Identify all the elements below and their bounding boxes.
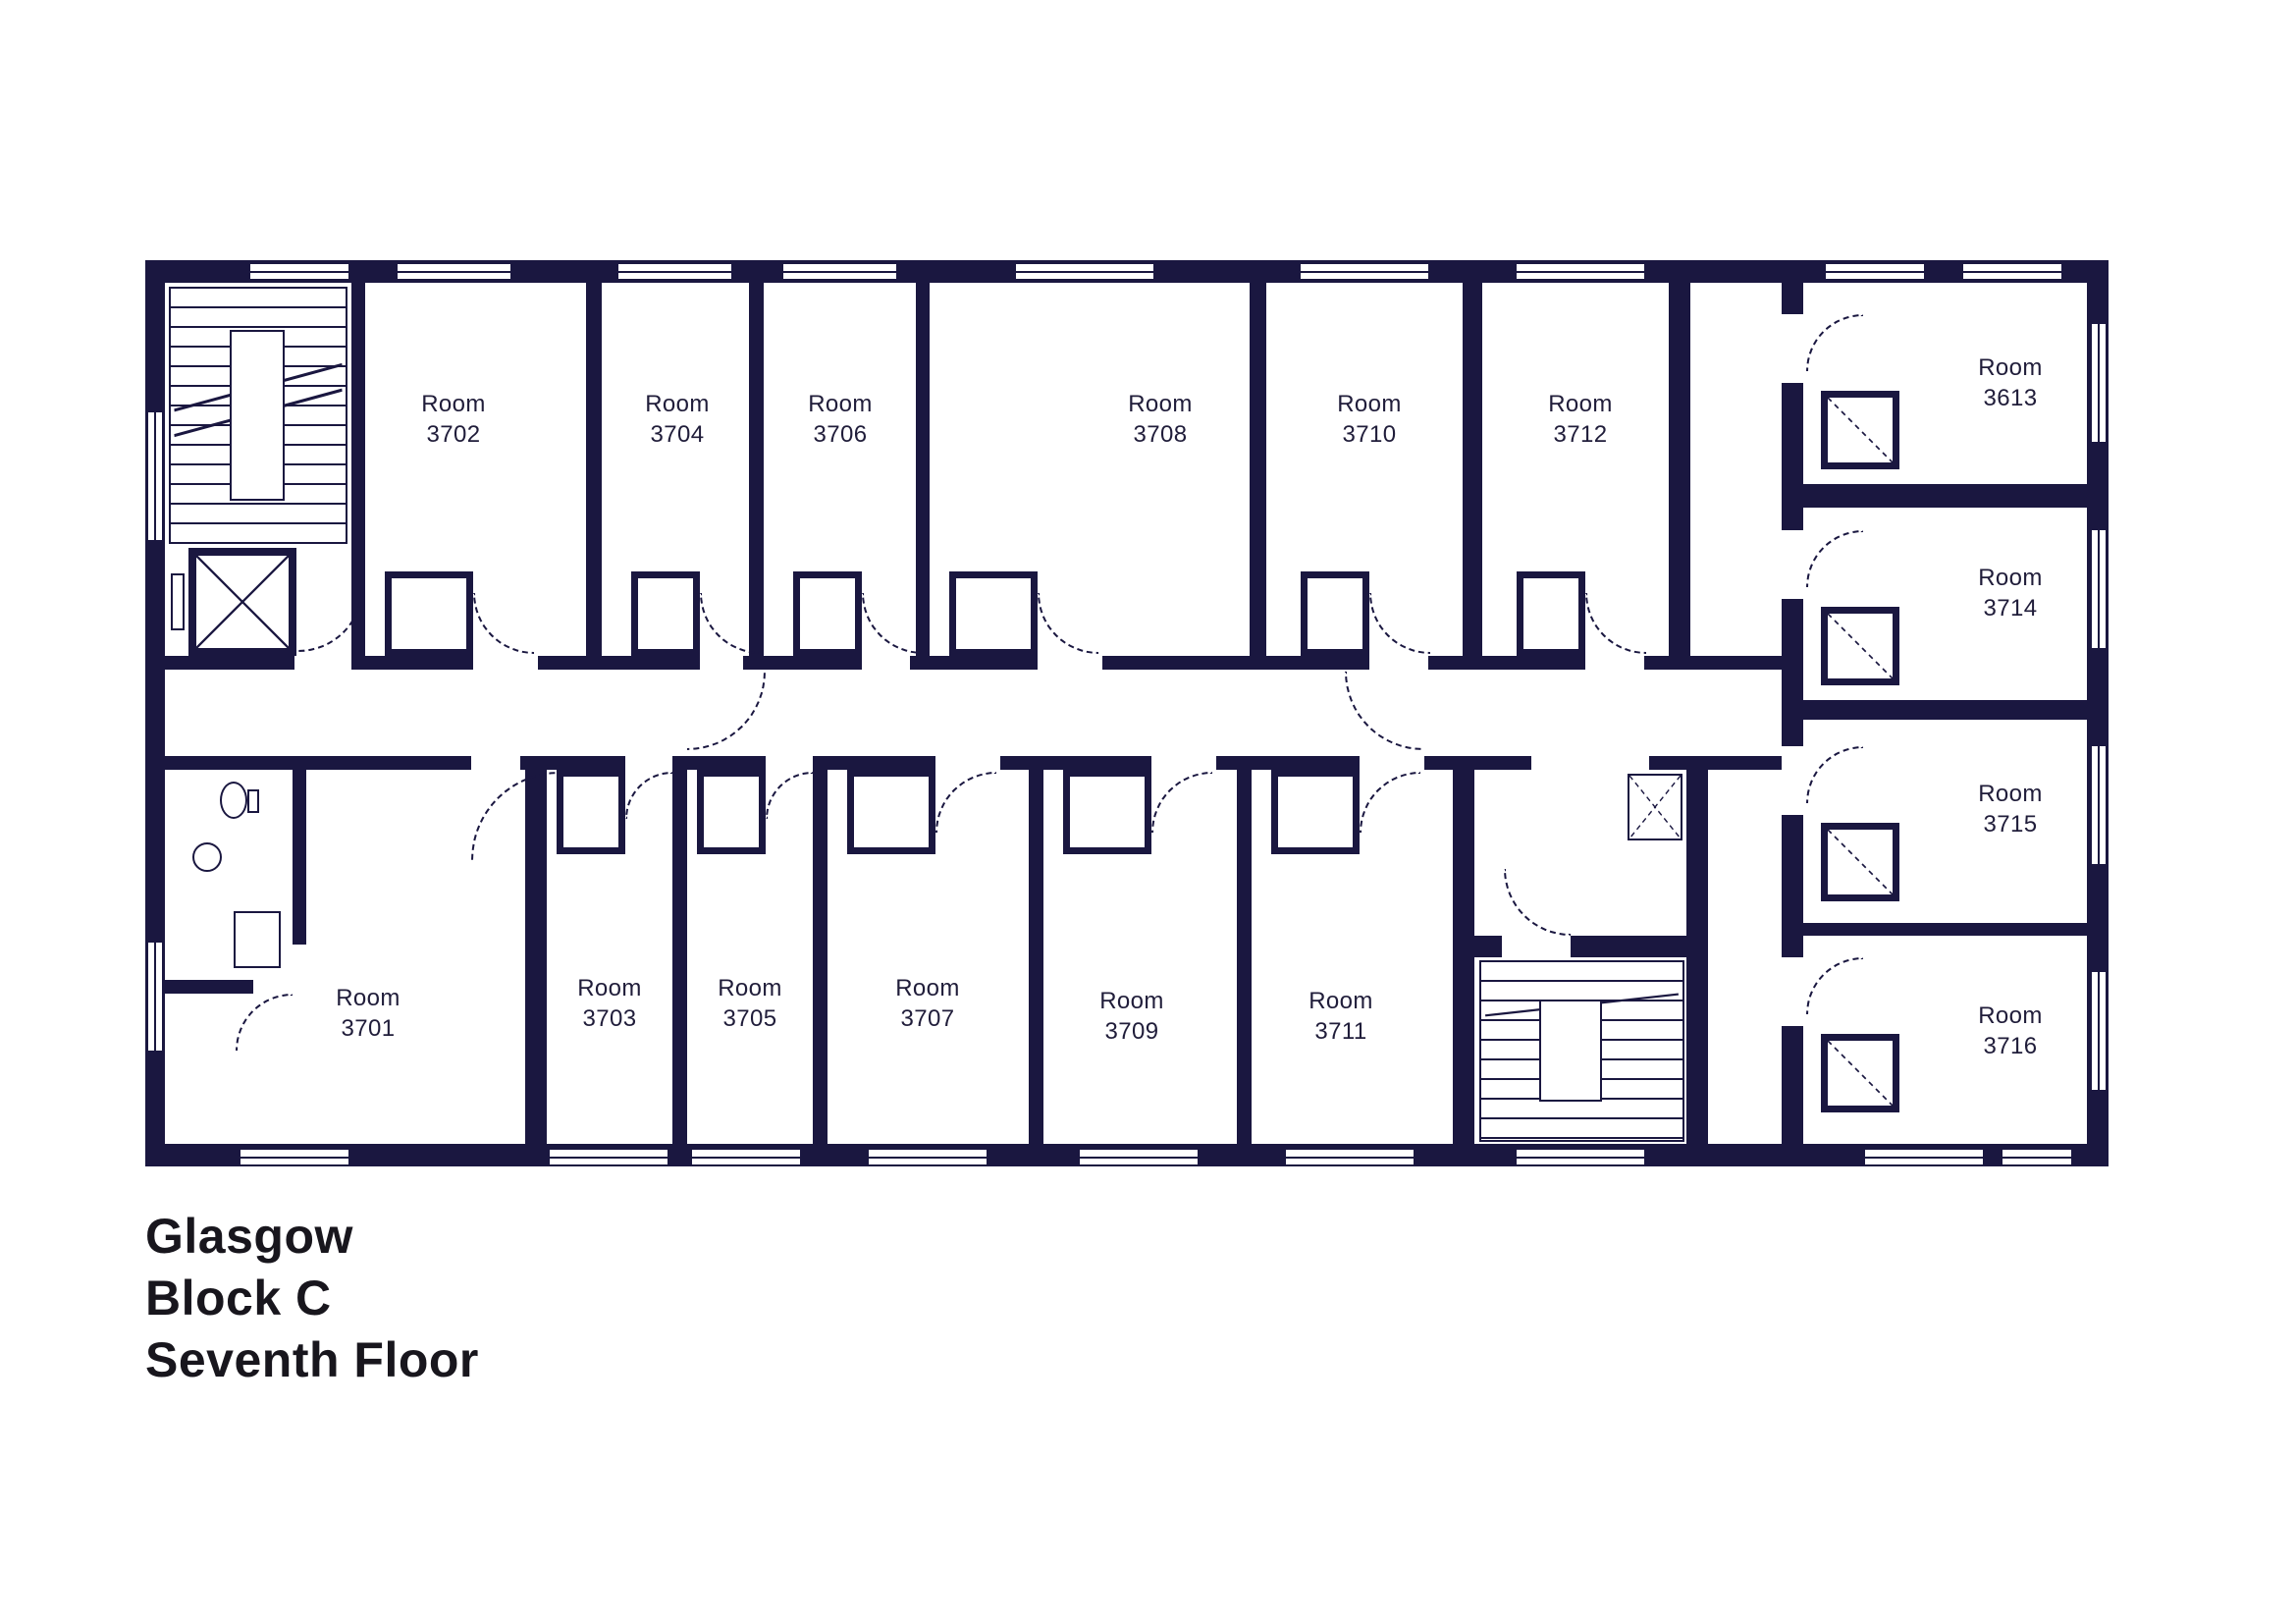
door-swing-arc (1151, 772, 1212, 833)
door-swing-arc (236, 994, 293, 1051)
window (1517, 262, 1644, 281)
door-swing-arc (862, 593, 923, 654)
bathroom-pod (1271, 770, 1360, 854)
wall-segment (1649, 756, 1782, 770)
bathroom-pod (793, 571, 862, 656)
title-line-floor: Seventh Floor (145, 1329, 479, 1391)
wall-segment (165, 756, 471, 770)
wall-segment (1803, 923, 2087, 936)
wall-segment (1644, 656, 1782, 670)
wall-segment (1571, 936, 1686, 957)
toilet-icon (220, 782, 247, 819)
wall-segment (165, 980, 253, 994)
wall-segment (1782, 283, 1803, 314)
title-line-block: Block C (145, 1268, 479, 1329)
bathroom-pod (631, 571, 700, 656)
bathroom-pod (1821, 391, 1899, 469)
door-swing-arc (700, 593, 761, 654)
window (1301, 262, 1428, 281)
shower-diagonal-icon (1828, 830, 1893, 894)
door-swing-arc (1806, 314, 1863, 371)
room-label-3711: Room 3711 (1308, 986, 1373, 1047)
wall-segment (1803, 484, 2087, 508)
room-label-3702: Room 3702 (421, 389, 486, 450)
window (2090, 746, 2108, 864)
window (240, 1148, 348, 1166)
plan-title: Glasgow Block C Seventh Floor (145, 1206, 479, 1391)
window (146, 943, 164, 1051)
basin-icon (192, 842, 222, 872)
wall-segment (1463, 283, 1482, 670)
wall-segment (1029, 770, 1043, 1144)
window (1016, 262, 1153, 281)
wall-segment (813, 756, 935, 770)
wall-segment (1474, 936, 1502, 957)
window (2002, 1148, 2071, 1166)
riser-shaft (1628, 774, 1682, 840)
wall-segment (1686, 770, 1708, 1144)
bathroom-pod (1821, 823, 1899, 901)
wall-segment (1216, 756, 1360, 770)
wall-segment (1237, 770, 1252, 1144)
wall-segment (1782, 383, 1803, 530)
window (2090, 324, 2108, 442)
window (1286, 1148, 1414, 1166)
riser-x-icon (1629, 776, 1681, 839)
elevator-shaft (188, 548, 296, 656)
wall-segment (520, 756, 625, 770)
desk-icon (234, 911, 281, 968)
wall-segment (1250, 283, 1266, 670)
room-label-3613: Room 3613 (1978, 352, 2043, 413)
floor-plan: Glasgow Block C Seventh Floor Room 3702R… (0, 0, 2296, 1623)
wall-segment (672, 756, 766, 770)
window (1963, 262, 2061, 281)
wall-segment (743, 656, 862, 670)
door-swing-arc (1360, 772, 1420, 833)
room-label-3705: Room 3705 (718, 973, 782, 1034)
window (692, 1148, 800, 1166)
wall-segment (1453, 770, 1474, 1144)
room-label-3709: Room 3709 (1099, 986, 1164, 1047)
door-swing-arc (473, 593, 534, 654)
room-label-3707: Room 3707 (895, 973, 960, 1034)
wall-segment (1102, 656, 1369, 670)
bathroom-pod (847, 770, 935, 854)
door-swing-arc (1585, 593, 1646, 654)
door-swing-arc (1345, 672, 1423, 750)
bathroom-pod (1821, 607, 1899, 685)
shower-diagonal-icon (1828, 614, 1893, 678)
room-label-3716: Room 3716 (1978, 1001, 2043, 1061)
window (1826, 262, 1924, 281)
wall-segment (672, 770, 687, 1144)
window (618, 262, 731, 281)
wall-segment (165, 656, 294, 670)
bathroom-pod (557, 770, 625, 854)
title-line-city: Glasgow (145, 1206, 479, 1268)
door-swing-arc (471, 772, 560, 860)
window (550, 1148, 667, 1166)
room-label-3704: Room 3704 (645, 389, 710, 450)
window (250, 262, 348, 281)
door-swing-arc (625, 772, 672, 819)
toilet-cistern-icon (247, 789, 259, 813)
room-label-3706: Room 3706 (808, 389, 873, 450)
window (869, 1148, 987, 1166)
bathroom-pod (1517, 571, 1585, 656)
shower-diagonal-icon (1828, 398, 1893, 462)
door-swing-arc (1806, 957, 1863, 1014)
window (783, 262, 896, 281)
wall-segment (1782, 599, 1803, 746)
door-swing-arc (935, 772, 996, 833)
wall-segment (813, 770, 828, 1144)
room-label-3712: Room 3712 (1548, 389, 1613, 450)
door-swing-arc (1369, 593, 1430, 654)
wall-segment (1669, 283, 1690, 670)
bathroom-pod (1301, 571, 1369, 656)
room-label-3701: Room 3701 (336, 983, 400, 1044)
window (2090, 972, 2108, 1090)
wall-segment (1000, 756, 1151, 770)
elevator-x-icon (196, 556, 289, 648)
room-label-3708: Room 3708 (1128, 389, 1193, 450)
door-swing-arc (687, 672, 766, 750)
door-swing-arc (1806, 746, 1863, 803)
wall-segment (1803, 700, 2087, 720)
bathroom-pod (949, 571, 1038, 656)
door-swing-arc (766, 772, 813, 819)
room-label-3715: Room 3715 (1978, 779, 2043, 839)
door-swing-arc (1504, 869, 1571, 936)
shower-diagonal-icon (1828, 1041, 1893, 1106)
wall-segment (293, 770, 306, 945)
bathroom-pod (1821, 1034, 1899, 1112)
window (1080, 1148, 1198, 1166)
door-swing-arc (1806, 530, 1863, 587)
elevator-counterweight (171, 573, 185, 630)
window (146, 412, 164, 540)
wall-segment (351, 656, 473, 670)
room-label-3710: Room 3710 (1337, 389, 1402, 450)
wall-segment (1428, 656, 1585, 670)
wall-segment (1782, 1026, 1803, 1144)
window (398, 262, 510, 281)
wall-segment (1424, 756, 1531, 770)
stair-landing (230, 330, 285, 501)
bathroom-pod (385, 571, 473, 656)
window (1865, 1148, 1983, 1166)
stair-landing (1539, 1000, 1602, 1102)
bathroom-pod (697, 770, 766, 854)
window (1517, 1148, 1644, 1166)
wall-segment (1782, 815, 1803, 957)
window (2090, 530, 2108, 648)
room-label-3714: Room 3714 (1978, 563, 2043, 623)
wall-segment (538, 656, 700, 670)
wall-segment (586, 283, 602, 670)
wall-segment (910, 656, 1038, 670)
room-label-3703: Room 3703 (577, 973, 642, 1034)
bathroom-pod (1063, 770, 1151, 854)
door-swing-arc (1038, 593, 1098, 654)
